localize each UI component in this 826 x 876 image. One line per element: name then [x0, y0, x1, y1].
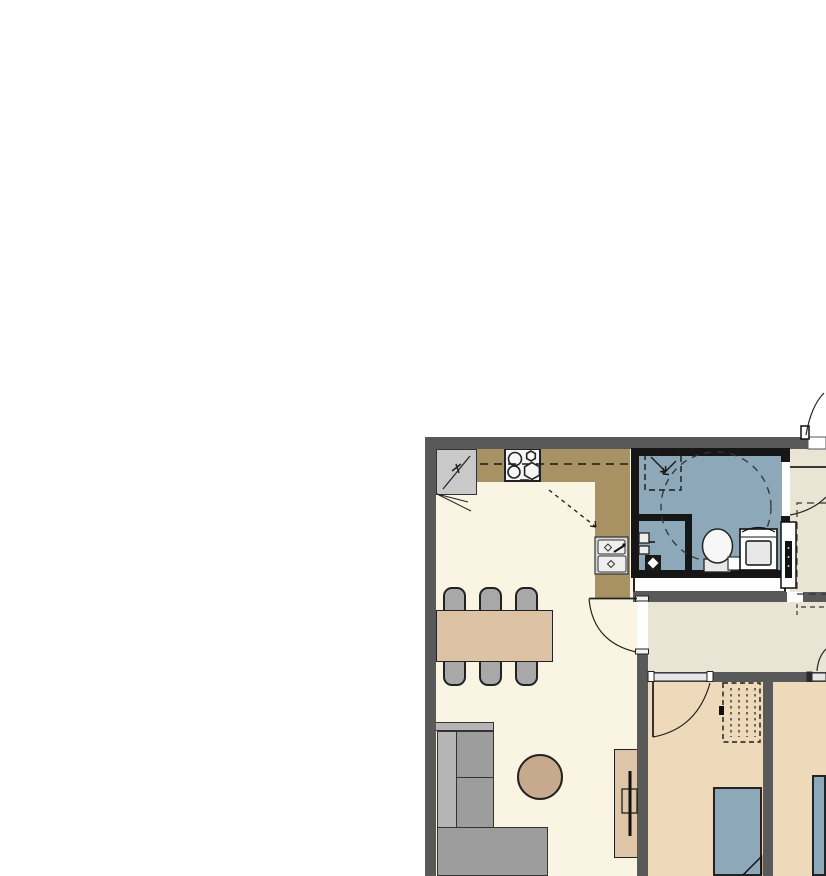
- wall-living-bedroom-divider: [637, 592, 648, 876]
- dining-table: [436, 610, 553, 662]
- dining-chair: [443, 658, 466, 686]
- wall-exterior-left: [425, 437, 436, 876]
- dining-chair: [479, 658, 502, 686]
- tv-cabinet: [614, 749, 638, 858]
- kitchen-counter-side-run: [595, 482, 630, 598]
- bathroom-partition-vertical: [685, 514, 692, 570]
- entry-door-swing: [806, 393, 824, 435]
- sofa-chaise-section: [437, 827, 548, 876]
- wall-hallway-bottom: [648, 672, 826, 682]
- round-coffee-table: [517, 754, 563, 800]
- cooktop: [504, 448, 541, 482]
- wall-hallway-top: [633, 592, 826, 602]
- bed-bedroom-2: [812, 775, 826, 876]
- refrigerator: [436, 449, 477, 495]
- dining-chair: [515, 658, 538, 686]
- sofa-seat-cushion: [456, 777, 494, 828]
- bathroom-walls: [631, 448, 790, 578]
- kitchen-counter-top-run: [477, 449, 630, 482]
- service-shaft: [633, 578, 786, 592]
- floor-hallway-upper: [790, 449, 826, 602]
- wall-bedroom-divider: [763, 672, 773, 876]
- sofa-seat-cushion: [456, 731, 494, 778]
- bed-bedroom-1: [713, 787, 762, 876]
- floorplan-canvas: [0, 0, 826, 876]
- floor-hallway-corridor: [648, 602, 826, 672]
- sofa-armrest: [435, 722, 494, 731]
